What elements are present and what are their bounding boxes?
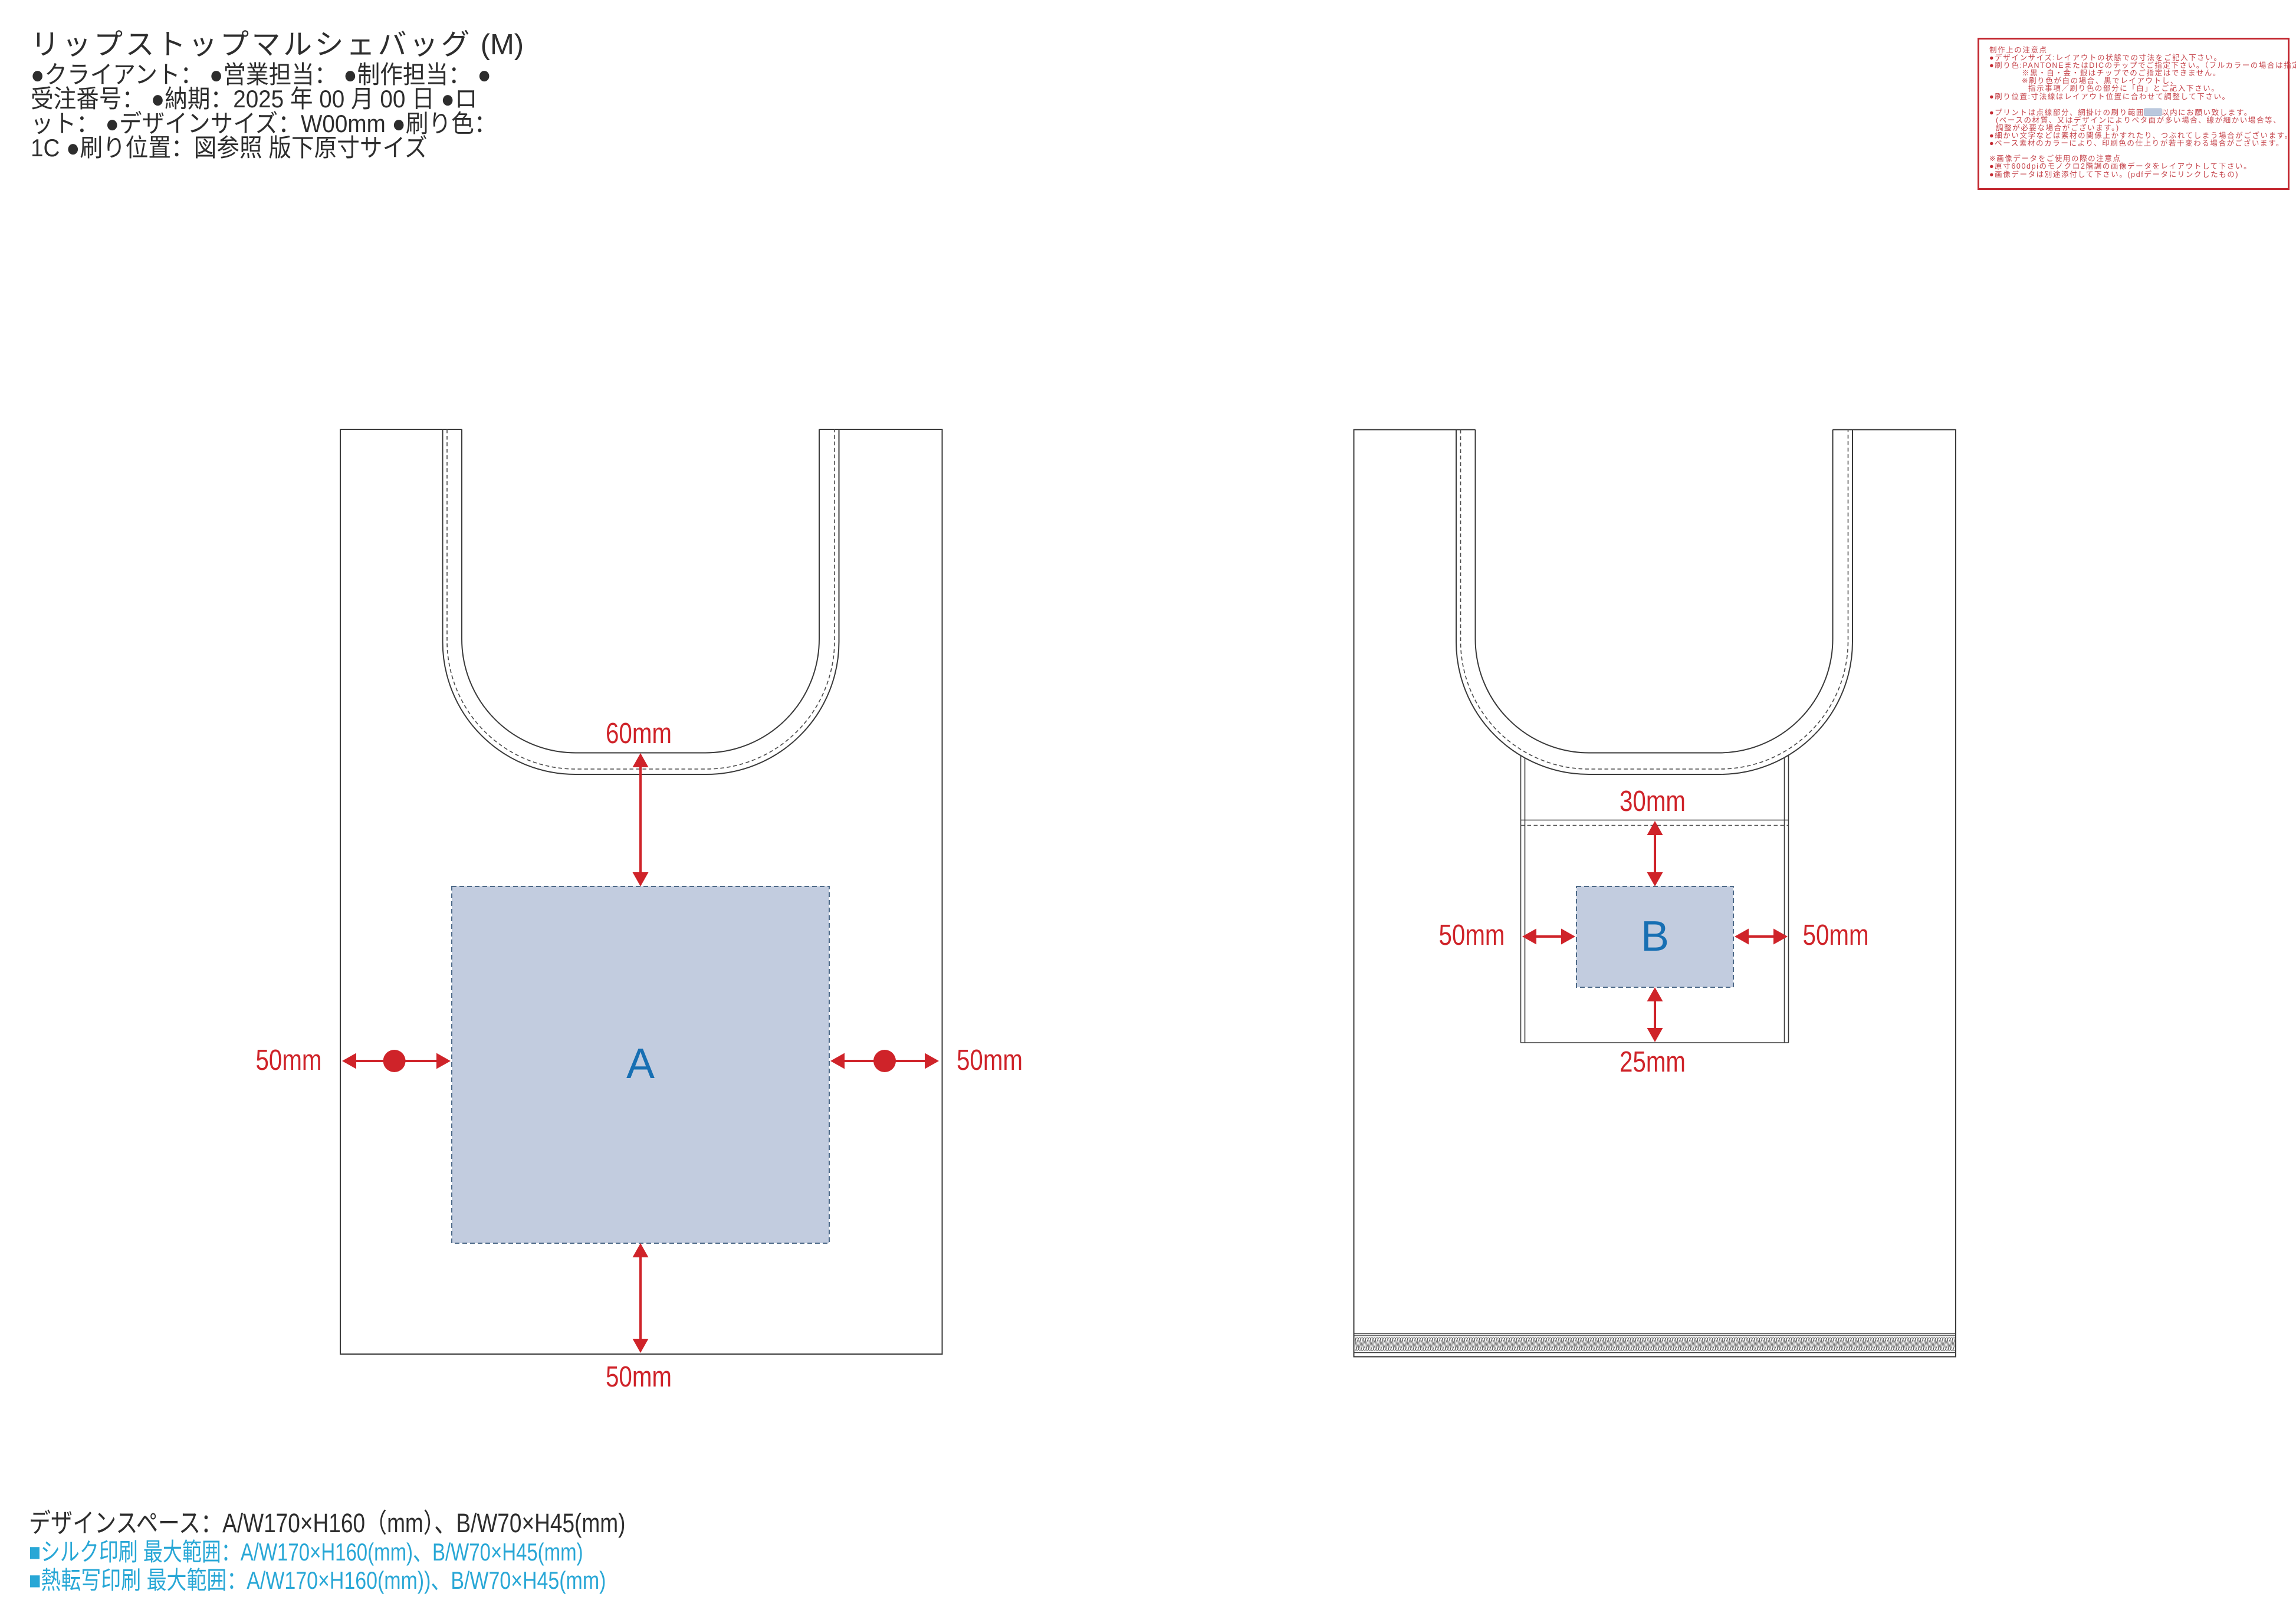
svg-text:50mm: 50mm	[1439, 919, 1505, 951]
svg-text:50mm: 50mm	[256, 1044, 322, 1076]
svg-text:30mm: 30mm	[1620, 786, 1686, 817]
svg-text:25mm: 25mm	[1620, 1046, 1686, 1078]
svg-text:50mm: 50mm	[957, 1044, 1023, 1076]
svg-text:50mm: 50mm	[1803, 919, 1869, 951]
svg-text:A: A	[626, 1040, 655, 1088]
svg-text:B: B	[1641, 913, 1669, 960]
svg-text:60mm: 60mm	[606, 718, 672, 750]
svg-text:50mm: 50mm	[606, 1361, 672, 1393]
